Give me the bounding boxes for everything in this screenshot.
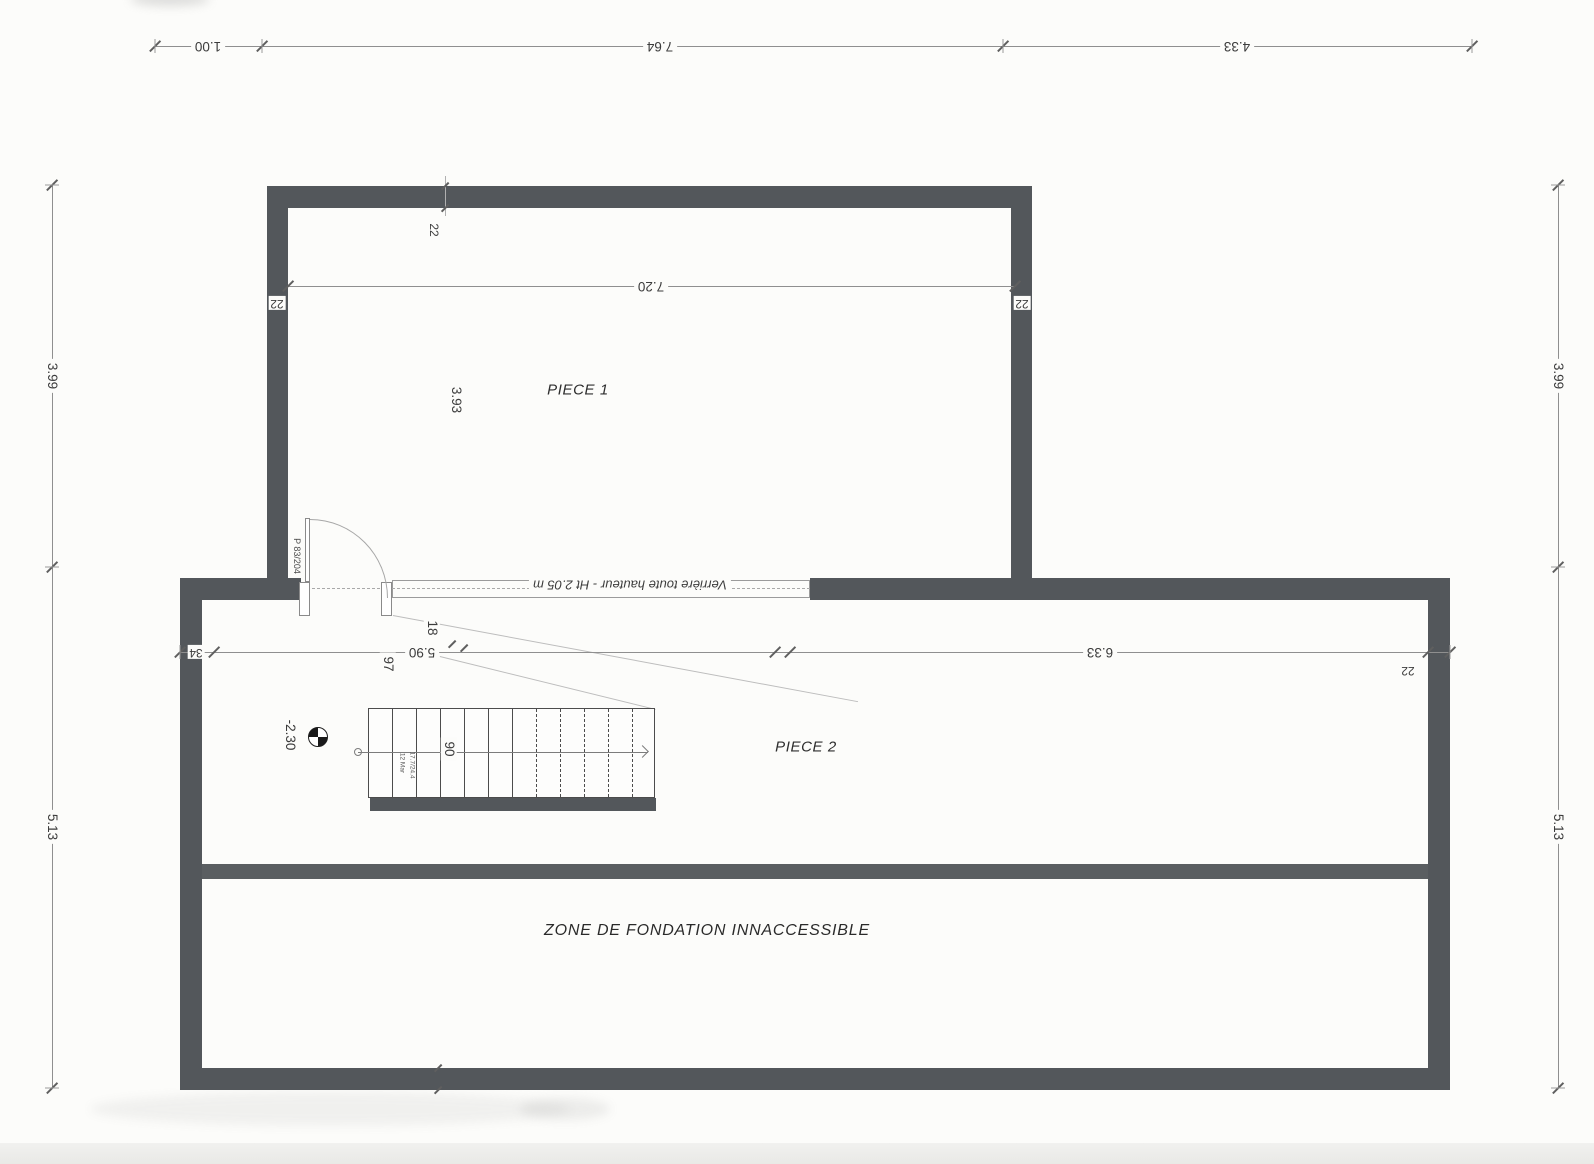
dim-ext-line	[445, 176, 446, 216]
stair-tread	[464, 709, 465, 797]
piece1-top-wall	[267, 186, 1032, 208]
foundation-zone-label: ZONE DE FONDATION INNACCESSIBLE	[544, 922, 870, 940]
level-marker-symbol	[308, 727, 328, 747]
dim-left-lower: 5.13	[44, 810, 60, 844]
glazing-tick	[448, 640, 456, 648]
dim-right-upper: 3.99	[1550, 359, 1566, 393]
dim-stub	[155, 39, 156, 53]
level-value: -2.30	[282, 716, 298, 755]
door-post-left	[299, 582, 310, 616]
glazing-note-label: Verrière toute hauteur - Ht 2.05 m	[529, 577, 731, 592]
dim-stub	[1003, 39, 1004, 53]
dim-lower-left-wall: 34	[187, 645, 204, 659]
stair-tread-dashed	[536, 709, 537, 797]
glazing-thickness-dim: 18	[424, 616, 440, 639]
stair-width-dim: 90	[441, 737, 457, 760]
stair-tread	[392, 709, 393, 797]
dim-top-3: 4.33	[1220, 38, 1254, 54]
stair-tread-dashed	[584, 709, 585, 797]
dim-stub	[1551, 185, 1565, 186]
dim-wall-left: 22	[268, 296, 285, 310]
glazing-end-cap	[392, 580, 393, 598]
dim-stub	[1472, 39, 1473, 53]
leader-line	[393, 615, 858, 702]
dim-stub	[45, 185, 59, 186]
glazing-line-inner	[392, 597, 810, 598]
dim-line-top	[155, 46, 1472, 47]
glazing-end-cap	[809, 580, 810, 598]
stair-note-1: 12 Mar	[398, 752, 405, 774]
dim-wall-top: 22	[426, 221, 440, 238]
dim-stub	[180, 645, 181, 659]
door-leaf	[305, 518, 310, 582]
dim-room1-width: 7.20	[634, 278, 668, 294]
room2-label: PIECE 2	[775, 739, 837, 756]
piece1-right-wall	[1011, 186, 1032, 600]
stair-tread-dashed	[632, 709, 633, 797]
dim-lower-right-span: 6.33	[1083, 644, 1117, 660]
dim-room1-depth: 3.93	[448, 383, 464, 417]
dim-stub	[1450, 645, 1451, 659]
stair-tread	[488, 709, 489, 797]
dim-wall-right: 22	[1013, 296, 1030, 310]
lower-top-wall-right	[810, 578, 1450, 600]
lower-bottom-wall	[180, 1068, 1450, 1090]
piece1-left-wall	[267, 186, 288, 600]
dim-right-lower: 5.13	[1550, 810, 1566, 844]
dim-line-right	[1558, 185, 1559, 1088]
scan-smudge	[130, 0, 210, 6]
dim-stub	[262, 39, 263, 53]
dim-stair-offset: 97	[380, 652, 396, 675]
dim-stub	[45, 567, 59, 568]
stair-tread-dashed	[608, 709, 609, 797]
dim-lower-left-span: 5.90	[405, 644, 439, 660]
dim-line-middle	[180, 652, 1450, 653]
stair-note-2: 17.7/24.4	[408, 750, 415, 779]
stair-tread	[416, 709, 417, 797]
scan-smudge	[520, 1098, 610, 1120]
leader-line	[440, 656, 656, 710]
dim-lower-right-wall: 22	[1399, 663, 1416, 677]
dim-top-2: 7.64	[643, 38, 677, 54]
stair-tread-dashed	[560, 709, 561, 797]
floorplan-canvas: { "labels": { "room1": "PIECE 1", "room2…	[0, 0, 1594, 1164]
door-swing-arc	[310, 519, 388, 598]
stair-tread	[512, 709, 513, 797]
dim-stub	[45, 1088, 59, 1089]
room1-label: PIECE 1	[547, 382, 609, 399]
stair-side-rail	[370, 798, 656, 811]
dim-left-upper: 3.99	[44, 359, 60, 393]
dim-top-1: 1.00	[191, 38, 225, 54]
glazing-tick	[460, 644, 468, 652]
dim-stub	[1551, 567, 1565, 568]
stair-walkline-start	[354, 748, 362, 756]
dim-line-left	[52, 185, 53, 1088]
dim-stub	[1551, 1088, 1565, 1089]
door-label: P 83/204	[292, 534, 302, 578]
foundation-divider-wall	[202, 864, 1428, 879]
scan-bottom-band	[0, 1143, 1594, 1164]
scan-smudge	[90, 1092, 570, 1126]
